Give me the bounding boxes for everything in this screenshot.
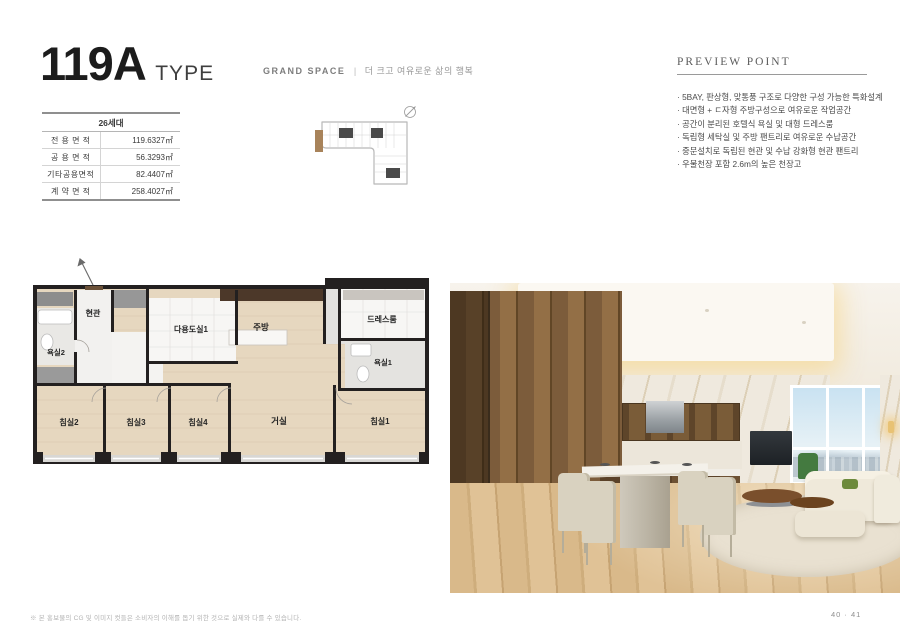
interior-rendering-image <box>450 283 900 593</box>
table-row: 기타공용면적 82.4407㎡ <box>42 166 180 183</box>
disclaimer-text: ※ 본 홍보물의 CG 및 이미지 컷들은 소비자의 이해를 돕기 위한 것으로… <box>30 612 301 622</box>
building-key-plan <box>310 102 420 190</box>
list-item: · 중문설치로 독립된 현관 및 수납 강화형 현관 팬트리 <box>677 145 867 158</box>
room-label-bedroom1: 침실1 <box>370 416 390 426</box>
list-item: · 5BAY, 판상형, 맞통풍 구조로 다양한 구성 가능한 특화설계 <box>677 91 867 104</box>
coffee-table <box>790 497 834 508</box>
list-item: · 독립형 세탁실 및 주방 팬트리로 여유로운 수납공간 <box>677 131 867 144</box>
floor-plan: 현관 욕실2 다용도실1 주방 드레스룸 욕실1 침실2 침실3 침실4 거실 … <box>33 250 429 466</box>
section-header: GRAND SPACE | 더 크고 여유로운 삶의 행복 <box>263 64 473 77</box>
room-label-bath2: 욕실2 <box>47 347 65 357</box>
room-label-entrance: 현관 <box>86 308 101 318</box>
section-tagline: 더 크고 여유로운 삶의 행복 <box>365 66 474 76</box>
section-label: GRAND SPACE <box>263 66 345 76</box>
section-divider: | <box>354 66 356 76</box>
unit-type-title: 119A <box>40 37 146 90</box>
wall-sconce <box>888 421 894 433</box>
entrance-arrow-icon <box>78 259 93 285</box>
spec-label: 공 용 면 적 <box>42 149 100 166</box>
armchair <box>874 475 900 523</box>
list-item: · 대면형 + ㄷ자형 주방구성으로 여유로운 작업공간 <box>677 104 867 117</box>
brochure-page: 119A TYPE GRAND SPACE | 더 크고 여유로운 삶의 행복 … <box>0 0 900 636</box>
table-row: 계 약 면 적 258.4027㎡ <box>42 183 180 201</box>
dining-chair <box>582 481 616 543</box>
spec-label: 계 약 면 적 <box>42 183 100 201</box>
page-number: 40 · 41 <box>831 610 861 619</box>
preview-point-section: PREVIEW POINT · 5BAY, 판상형, 맞통풍 구조로 다양한 구… <box>677 56 867 171</box>
room-label-bedroom2: 침실2 <box>59 417 79 427</box>
compass-icon <box>405 107 416 118</box>
spec-value: 82.4407㎡ <box>100 166 180 183</box>
tv <box>750 431 792 465</box>
highlighted-unit-marker <box>315 130 323 152</box>
page-title: 119A TYPE <box>40 36 214 91</box>
room-label-bedroom4: 침실4 <box>188 417 208 427</box>
sofa-chaise <box>795 511 865 537</box>
list-item: · 공간이 분리된 호텔식 욕실 및 대형 드레스룸 <box>677 118 867 131</box>
area-spec-table: 26세대 전 용 면 적 119.6327㎡ 공 용 면 적 56.3293㎡ … <box>42 112 180 201</box>
table-row: 공 용 면 적 56.3293㎡ <box>42 149 180 166</box>
pillow <box>842 479 858 489</box>
room-label-bedroom3: 침실3 <box>126 417 146 427</box>
spec-value: 56.3293㎡ <box>100 149 180 166</box>
spec-label: 전 용 면 적 <box>42 132 100 149</box>
spec-label: 기타공용면적 <box>42 166 100 183</box>
preview-point-list: · 5BAY, 판상형, 맞통풍 구조로 다양한 구성 가능한 특화설계 · 대… <box>677 91 867 171</box>
room-label-dressroom: 드레스룸 <box>367 314 397 324</box>
spec-value: 119.6327㎡ <box>100 132 180 149</box>
preview-point-heading: PREVIEW POINT <box>677 56 867 75</box>
household-count: 26세대 <box>42 113 180 132</box>
dining-table-base <box>620 476 670 548</box>
table-row: 전 용 면 적 119.6327㎡ <box>42 132 180 149</box>
unit-type-suffix: TYPE <box>155 62 214 85</box>
room-label-utility1: 다용도실1 <box>174 324 208 334</box>
range-hood <box>646 401 684 433</box>
spec-value: 258.4027㎡ <box>100 183 180 201</box>
dining-chair <box>704 477 736 535</box>
list-item: · 우물천장 포함 2.6m의 높은 천장고 <box>677 158 867 171</box>
room-label-bath1: 욕실1 <box>374 357 392 367</box>
room-label-living: 거실 <box>271 416 287 426</box>
room-label-kitchen: 주방 <box>253 322 269 332</box>
